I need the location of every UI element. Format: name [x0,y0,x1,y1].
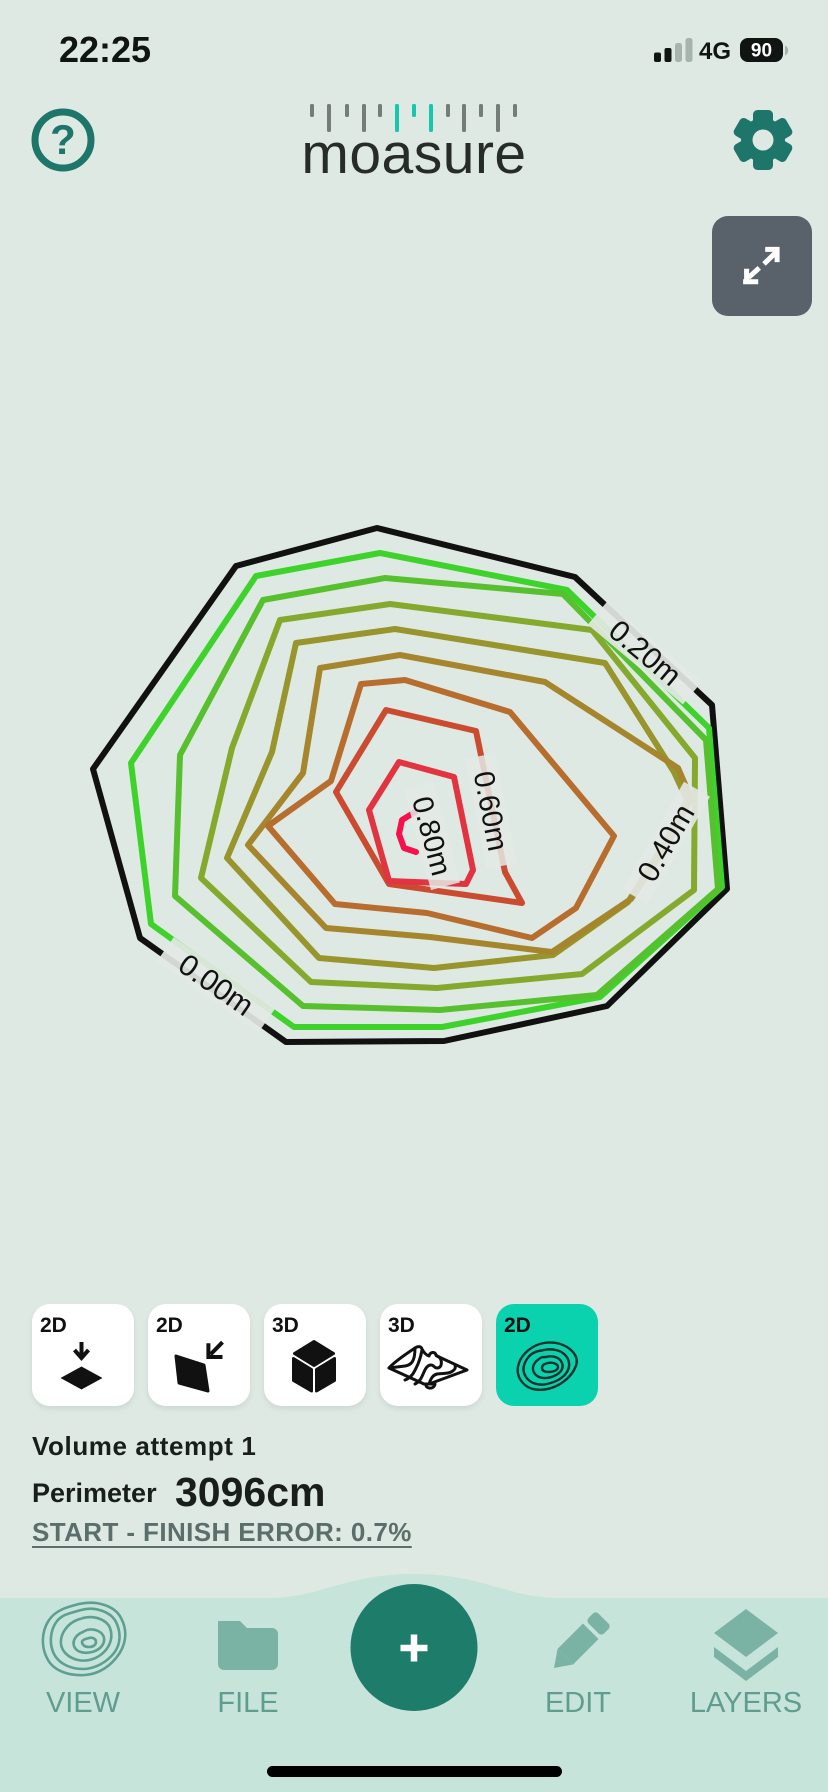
svg-text:0.80m: 0.80m [405,793,457,879]
svg-text:VIEW: VIEW [46,1687,121,1719]
svg-text:FILE: FILE [217,1687,278,1719]
svg-text:0.60m: 0.60m [467,769,514,854]
svg-text:0.40m: 0.40m [631,799,701,888]
svg-text:EDIT: EDIT [545,1687,611,1719]
svg-text:LAYERS: LAYERS [690,1687,802,1719]
